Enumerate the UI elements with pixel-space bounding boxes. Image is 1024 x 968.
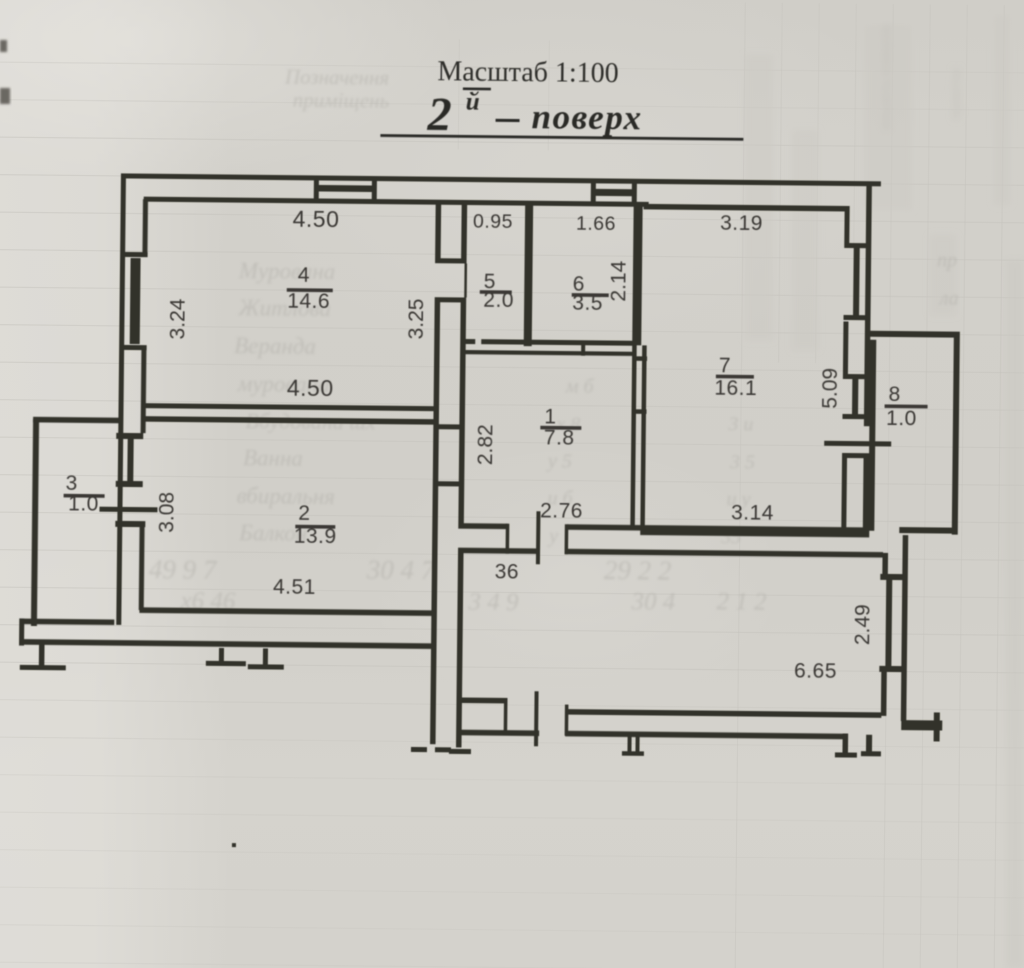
- svg-text:3 5: 3 5: [729, 451, 755, 473]
- svg-text:1.66: 1.66: [576, 213, 616, 235]
- svg-text:7.8: 7.8: [544, 426, 575, 449]
- svg-text:30 4: 30 4: [630, 588, 675, 615]
- svg-text:7: 7: [719, 354, 731, 377]
- svg-text:1: 1: [544, 405, 556, 428]
- svg-text:2.49: 2.49: [851, 604, 874, 645]
- svg-text:3.25: 3.25: [405, 298, 428, 339]
- svg-text:4.50: 4.50: [292, 206, 339, 232]
- svg-text:пр: пр: [937, 249, 957, 271]
- svg-text:2 1 2: 2 1 2: [716, 588, 766, 616]
- svg-text:49 9 7: 49 9 7: [149, 554, 218, 585]
- svg-text:2.82: 2.82: [474, 424, 497, 465]
- svg-text:Позначення: Позначення: [284, 65, 389, 90]
- svg-text:ла: ла: [939, 287, 959, 309]
- svg-text:2.76: 2.76: [540, 499, 583, 522]
- svg-text:у: у: [547, 525, 558, 547]
- svg-text:Ванна: Ванна: [243, 445, 303, 471]
- svg-text:у 5: у 5: [546, 450, 572, 472]
- svg-text:кількість поверхів: кількість поверхів: [878, 24, 893, 130]
- svg-text:3.5: 3.5: [572, 292, 603, 315]
- svg-text:0.95: 0.95: [473, 211, 513, 233]
- svg-text:3.19: 3.19: [720, 212, 763, 235]
- svg-text:30 4 7: 30 4 7: [366, 554, 436, 585]
- svg-text:вбиральня: вбиральня: [236, 483, 335, 509]
- svg-text:29 2 2: 29 2 2: [604, 555, 672, 586]
- svg-text:2: 2: [298, 502, 310, 525]
- svg-text:16.1: 16.1: [714, 377, 757, 400]
- svg-text:4.50: 4.50: [287, 375, 334, 401]
- svg-text:13.9: 13.9: [294, 525, 337, 548]
- svg-text:2.0: 2.0: [483, 289, 514, 312]
- svg-text:3 и: 3 и: [727, 413, 753, 435]
- svg-text:8: 8: [888, 383, 900, 406]
- svg-text:м б: м б: [565, 376, 595, 398]
- svg-text:3.24: 3.24: [166, 298, 189, 339]
- svg-text:3.14: 3.14: [731, 501, 774, 524]
- svg-text:6.65: 6.65: [794, 659, 837, 682]
- svg-text:3 4 9: 3 4 9: [467, 589, 519, 617]
- svg-text:5.09: 5.09: [819, 368, 842, 409]
- svg-text:3.08: 3.08: [155, 492, 178, 533]
- svg-text:1.0: 1.0: [68, 492, 99, 515]
- svg-text:4.51: 4.51: [273, 576, 316, 599]
- svg-text:2.14: 2.14: [607, 260, 630, 301]
- svg-text:примітки: примітки: [948, 68, 963, 120]
- svg-text:Веранда: Веранда: [234, 333, 316, 359]
- svg-text:4: 4: [298, 264, 310, 287]
- svg-text:й: й: [466, 88, 480, 115]
- svg-text:Мурована: Мурована: [238, 258, 336, 284]
- svg-text:приміщень: приміщень: [293, 88, 390, 113]
- svg-text:поверх: поверх: [531, 97, 642, 137]
- svg-text:14.6: 14.6: [287, 290, 330, 313]
- svg-text:Масштаб 1:100: Масштаб 1:100: [437, 56, 619, 89]
- svg-text:36: 36: [495, 560, 520, 583]
- svg-text:1.0: 1.0: [886, 407, 917, 430]
- svg-text:2: 2: [426, 88, 452, 141]
